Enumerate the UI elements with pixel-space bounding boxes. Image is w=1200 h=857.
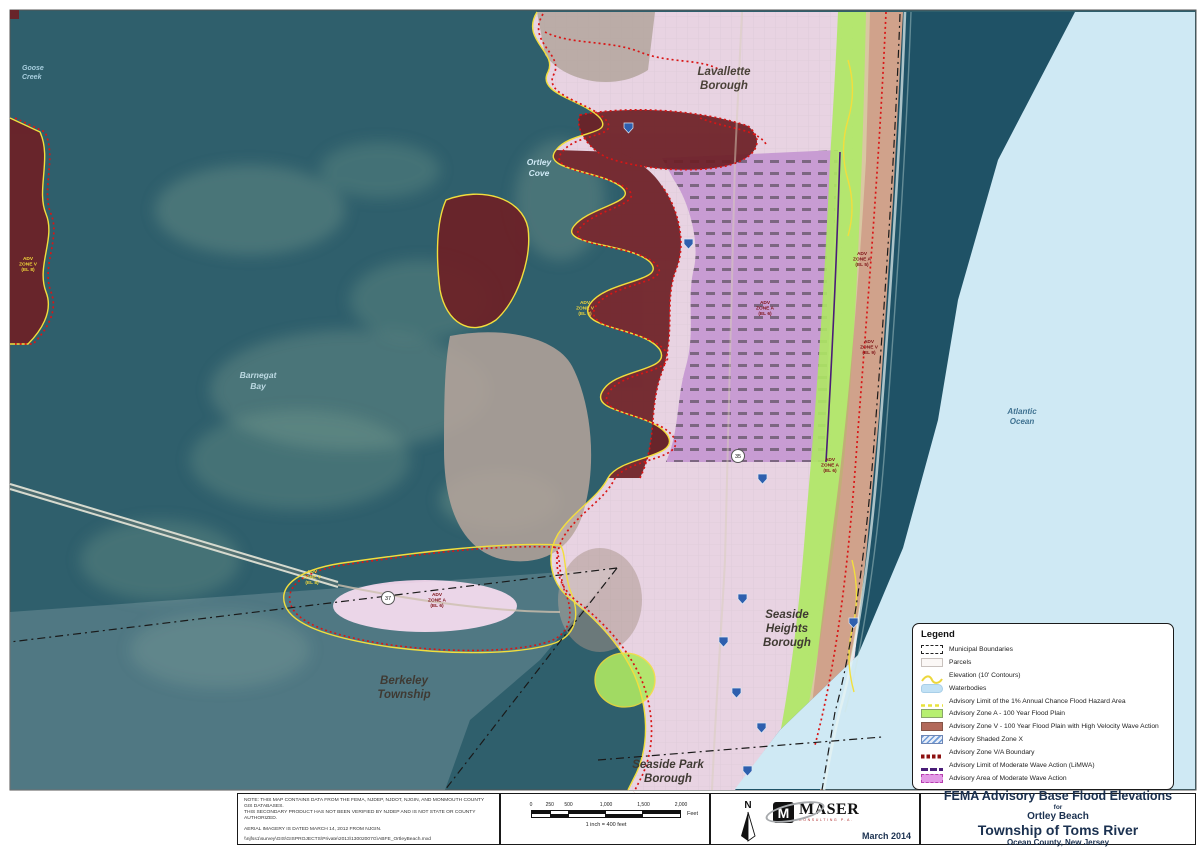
north-arrow-icon: N [733, 798, 763, 844]
svg-text:ZONE V: ZONE V [576, 306, 595, 312]
svg-text:Borough: Borough [700, 80, 748, 92]
legend-item-shaded-x: Advisory Shaded Zone X [921, 733, 1167, 746]
svg-text:Cove: Cove [529, 168, 550, 178]
svg-text:37: 37 [385, 596, 391, 602]
svg-text:Barnegat: Barnegat [240, 370, 278, 380]
scale-caption: 1 inch = 400 feet [531, 822, 681, 828]
svg-text:ZONE V: ZONE V [19, 262, 38, 268]
svg-text:ADV: ADV [307, 569, 318, 575]
svg-text:ADV: ADV [432, 592, 443, 598]
svg-text:Bay: Bay [250, 381, 267, 391]
svg-text:(EL 6): (EL 6) [430, 603, 444, 609]
svg-text:ADV: ADV [580, 300, 591, 306]
svg-text:(EL 6): (EL 6) [758, 311, 772, 317]
legend-item-waterbodies: Waterbodies [921, 682, 1167, 695]
limwa-swatch [921, 761, 943, 770]
label-atlantic-ocean: Atlantic Ocean [1006, 407, 1037, 426]
shaded-zone-x-swatch [921, 735, 943, 744]
svg-text:ADV: ADV [760, 300, 771, 306]
scale-bar: 0 250 500 1,000 1,500 2,000 1 inch = 400… [531, 802, 681, 828]
mowa-swatch [921, 774, 943, 783]
svg-text:(EL 9): (EL 9) [862, 350, 876, 356]
label-ortley-cove: Ortley Cove [527, 157, 553, 178]
zone-a-swatch [921, 709, 943, 718]
route-shield-37: 37 [382, 592, 395, 605]
map-date: March 2014 [862, 831, 911, 841]
legend-item-va-boundary: Advisory Zone V/A Boundary [921, 746, 1167, 759]
note-line-2: THIS SECONDARY PRODUCT HAS NOT BEEN VERI… [244, 810, 493, 822]
svg-text:ZONE V: ZONE V [860, 345, 879, 351]
svg-text:35: 35 [735, 454, 741, 460]
municipal-boundary-swatch [921, 645, 943, 654]
title-block: FEMA Advisory Base Flood Elevations for … [920, 793, 1196, 845]
svg-text:ZONE A: ZONE A [756, 306, 774, 312]
label-seaside-heights: Seaside Heights Borough [763, 609, 811, 649]
legend-item-zone-a: Advisory Zone A - 100 Year Flood Plain [921, 707, 1167, 720]
north-logo-box: N M MASER CONSULTING P.A. March 2014 [710, 793, 920, 845]
svg-text:ZONE A: ZONE A [853, 257, 871, 263]
maser-logo-subtext: CONSULTING P.A. [799, 819, 859, 823]
legend-box: Legend Municipal Boundaries Parcels Elev… [912, 623, 1174, 790]
svg-text:Township: Township [377, 689, 430, 701]
map-sheet: 37 35 Goose Creek Lavallette Borough Ort… [0, 0, 1200, 857]
svg-text:Heights: Heights [766, 623, 808, 635]
legend-item-contours: Elevation (10' Contours) [921, 669, 1167, 682]
svg-text:(EL 8): (EL 8) [21, 267, 35, 273]
svg-text:Creek: Creek [22, 74, 43, 81]
note-line-1: NOTE: THIS MAP CONTAINS DATA FROM THE FE… [244, 798, 493, 810]
svg-text:ADV: ADV [857, 251, 868, 257]
scale-ticks: 0 250 500 1,000 1,500 2,000 [531, 802, 681, 810]
svg-text:ADV: ADV [825, 457, 836, 463]
zone-a-blob [595, 653, 655, 707]
svg-text:ZONE A: ZONE A [821, 463, 839, 469]
scale-unit: Feet [687, 811, 698, 817]
svg-text:Lavallette: Lavallette [697, 66, 751, 78]
svg-text:N: N [744, 800, 751, 811]
svg-text:ZONE A: ZONE A [428, 598, 446, 604]
svg-text:Ortley: Ortley [527, 157, 553, 167]
legend-title: Legend [921, 629, 1167, 640]
gray-marsh-mid [444, 332, 591, 561]
svg-text:ADV: ADV [23, 256, 34, 262]
map-title-township: Township of Toms River [978, 823, 1139, 838]
svg-text:ADV: ADV [864, 339, 875, 345]
svg-text:Goose: Goose [22, 65, 44, 72]
svg-text:Seaside: Seaside [765, 609, 809, 621]
scale-box: 0 250 500 1,000 1,500 2,000 1 inch = 400… [500, 793, 710, 845]
svg-text:Seaside Park: Seaside Park [632, 759, 704, 771]
zone-v-swatch [921, 722, 943, 731]
svg-text:(EL 8): (EL 8) [305, 580, 319, 586]
svg-text:(EL 5): (EL 5) [855, 262, 869, 268]
map-title-for: for [1054, 804, 1063, 811]
legend-item-1pct-limit: Advisory Limit of the 1% Annual Chance F… [921, 695, 1167, 708]
note-file-path: \\njfss1\survey\GIS\GISPROJECTS\Private\… [244, 837, 493, 843]
svg-text:(EL 8): (EL 8) [578, 311, 592, 317]
legend-item-zone-v: Advisory Zone V - 100 Year Flood Plain w… [921, 720, 1167, 733]
legend-item-parcels: Parcels [921, 656, 1167, 669]
waterbodies-swatch [921, 684, 943, 693]
maser-logo: M MASER CONSULTING P.A. [773, 802, 859, 823]
legend-item-limwa: Advisory Limit of Moderate Wave Action (… [921, 759, 1167, 772]
maser-logo-icon: M [773, 802, 794, 823]
va-boundary-swatch [921, 748, 943, 757]
legend-item-mowa: Advisory Area of Moderate Wave Action [921, 772, 1167, 785]
map-title-area: Ortley Beach [1027, 811, 1089, 823]
svg-text:Atlantic: Atlantic [1006, 407, 1037, 416]
svg-text:Borough: Borough [763, 637, 811, 649]
parcels-swatch [921, 658, 943, 667]
route-shield-35: 35 [732, 450, 745, 463]
contour-swatch [921, 671, 943, 680]
legend-item-municipal-boundaries: Municipal Boundaries [921, 643, 1167, 656]
map-title-county: Ocean County, New Jersey [1007, 838, 1109, 848]
svg-text:(EL 6): (EL 6) [823, 468, 837, 474]
svg-text:Borough: Borough [644, 773, 692, 785]
notes-box: NOTE: THIS MAP CONTAINS DATA FROM THE FE… [237, 793, 500, 845]
scale-bar-blocks [531, 810, 681, 818]
svg-text:Berkeley: Berkeley [380, 675, 429, 687]
map-title: FEMA Advisory Base Flood Elevations [944, 790, 1172, 804]
flood-limit-swatch [921, 697, 943, 706]
svg-text:Ocean: Ocean [1010, 417, 1035, 426]
svg-text:ZONE V: ZONE V [303, 575, 322, 581]
